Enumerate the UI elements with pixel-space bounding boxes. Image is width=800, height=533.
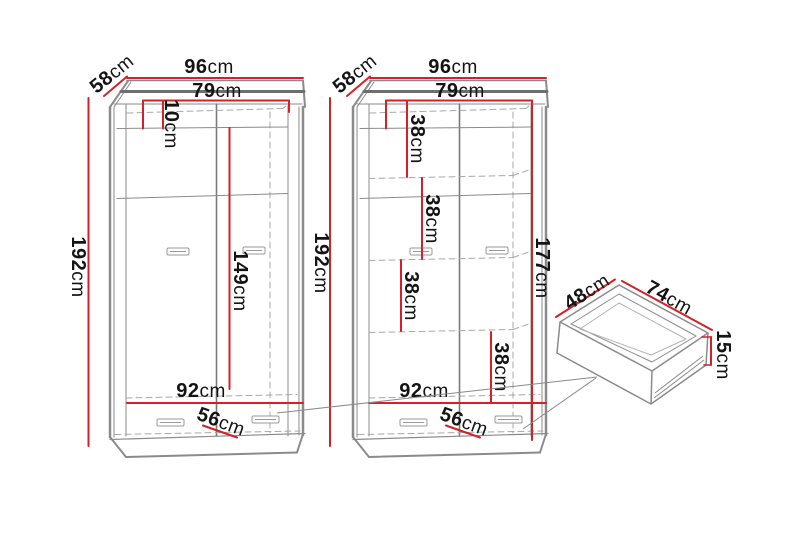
wardrobe-right-labels: 58cm 96cm 79cm 38cm 38cm 38cm 38cm 192cm… [310,50,553,441]
furniture-dimension-diagram: 58cm 96cm 79cm 10cm 192cm 149cm 92cm 56c… [0,0,800,533]
wardrobe-left-labels: 58cm 96cm 79cm 10cm 192cm 149cm 92cm 56c… [67,50,251,441]
wardrobe-left-drawing: 58cm 96cm 79cm 10cm 192cm 149cm 92cm 56c… [67,50,305,457]
w2-interior-width-label: 79cm [435,80,485,102]
w2-drawer-width-label: 56cm [437,403,491,441]
drawer-height-label: 15cm [712,330,734,380]
diagram-svg: 58cm 96cm 79cm 10cm 192cm 149cm 92cm 56c… [0,0,800,533]
w2-shelf-gap-1-label: 38cm [406,114,428,164]
w1-top-gap-label: 10cm [160,99,182,149]
wardrobe-right-structure [353,81,548,458]
w1-width-label: 96cm [184,56,234,78]
w1-interior-height-label: 149cm [229,250,251,311]
w2-shelf-gap-2-label: 38cm [421,194,443,244]
w1-interior-width-label: 79cm [192,80,242,102]
w1-height-label: 192cm [67,236,89,297]
wardrobe-right-shelves [358,170,543,435]
w1-bottom-width-label: 92cm [176,380,226,402]
w2-width-label: 96cm [428,56,478,78]
w2-shelf-gap-3-label: 38cm [400,271,422,321]
w1-drawer-width-label: 56cm [194,403,248,441]
drawer-drawing: 48cm 74cm 15cm [556,269,734,404]
w2-shelf-gap-4-label: 38cm [490,342,512,392]
w2-interior-height-label: 177cm [531,237,553,298]
w2-height-label: 192cm [310,232,332,293]
